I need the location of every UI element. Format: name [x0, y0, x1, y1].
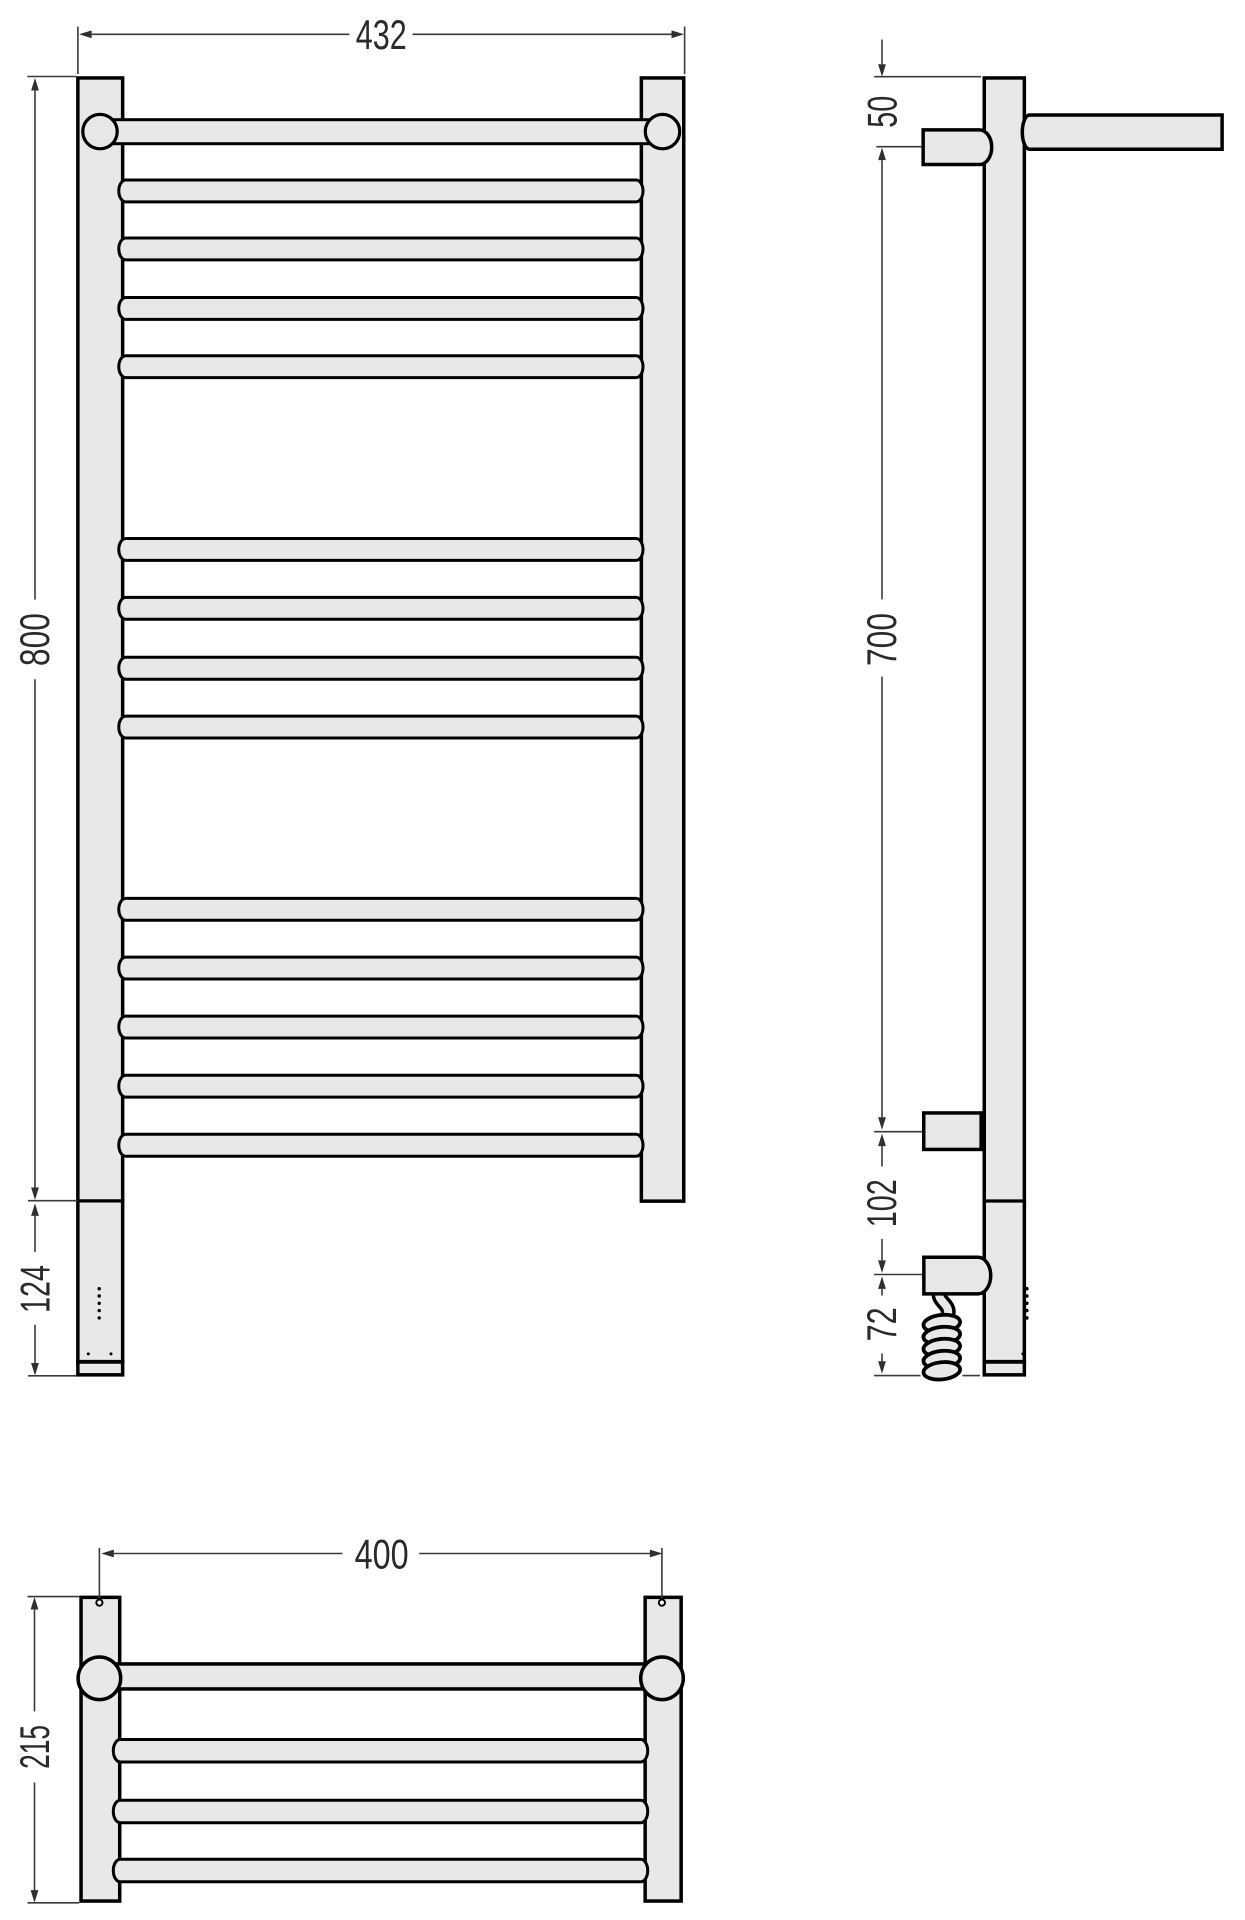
svg-text:432: 432: [356, 11, 407, 58]
svg-text:800: 800: [11, 613, 58, 666]
svg-text:50: 50: [858, 96, 905, 128]
svg-text:215: 215: [11, 1725, 58, 1769]
svg-text:124: 124: [11, 1265, 58, 1313]
svg-text:102: 102: [858, 1179, 905, 1227]
svg-text:72: 72: [858, 1307, 905, 1341]
svg-text:400: 400: [355, 1531, 409, 1578]
svg-text:700: 700: [858, 613, 905, 666]
